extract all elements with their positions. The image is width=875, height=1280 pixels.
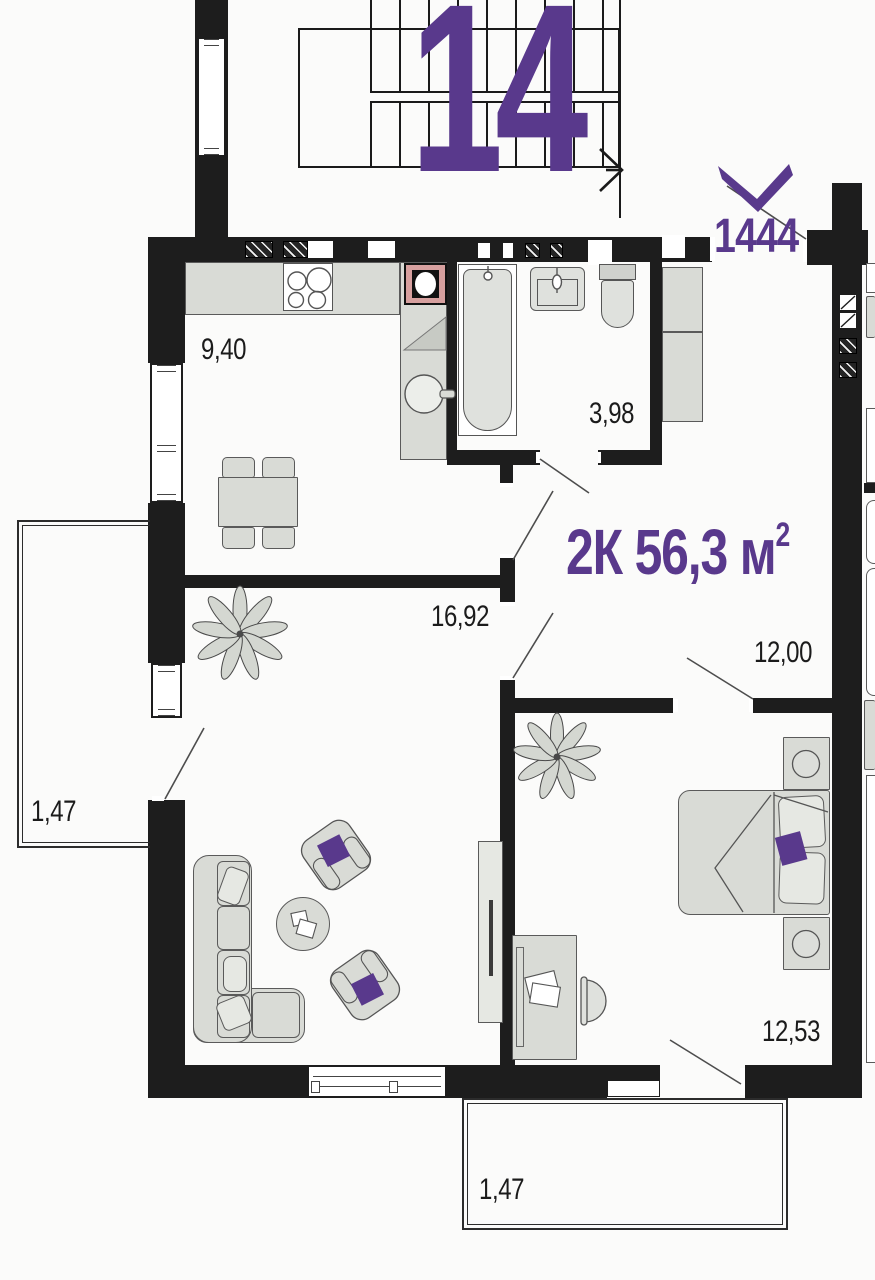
balcony-inner-line xyxy=(467,1103,783,1225)
stove xyxy=(283,263,333,311)
vent-shaft-icon xyxy=(840,313,856,328)
stair-window xyxy=(197,37,226,157)
room-area-balcony-bottom: 1,47 xyxy=(479,1175,524,1205)
wall-top xyxy=(148,237,712,262)
door-cap xyxy=(749,699,753,712)
door-cap xyxy=(500,483,513,487)
neighbor-fixture xyxy=(866,408,875,483)
dining-chair xyxy=(222,457,255,478)
plant-icon xyxy=(192,586,289,681)
desk-edge xyxy=(516,947,524,1047)
wall-opening xyxy=(503,243,513,258)
vent-shaft-icon xyxy=(283,241,308,258)
window-mullion xyxy=(157,494,176,501)
armchair xyxy=(296,815,375,895)
area-superscript: 2 xyxy=(776,516,790,554)
floor-plan: 14 1444 2К 56,3 м2 9,40 3,98 16,92 12,00… xyxy=(0,0,875,1280)
room-area-bathroom: 3,98 xyxy=(589,399,634,429)
neighbor-fixture xyxy=(866,263,875,293)
neighbor-fixture xyxy=(866,500,875,564)
wall-bottom-mid xyxy=(447,1065,607,1098)
living-window-bottom xyxy=(307,1065,447,1098)
dining-table xyxy=(218,477,298,527)
door-cap xyxy=(500,676,515,680)
window-mullion xyxy=(157,445,176,452)
wardrobe-upper xyxy=(662,267,703,332)
wardrobe-lower xyxy=(662,332,703,422)
toilet-tank xyxy=(599,264,636,280)
wall-left-b xyxy=(148,503,185,663)
wall-opening xyxy=(368,241,395,258)
living-window-left xyxy=(151,663,182,718)
bed-pillow xyxy=(778,795,827,849)
window-mullion xyxy=(204,39,219,46)
wall-opening xyxy=(478,243,490,258)
bedroom-window-bottom xyxy=(607,1080,660,1097)
sofa-pillow xyxy=(223,956,247,992)
unit-number: 1444 xyxy=(714,213,798,261)
desk-chair xyxy=(581,977,606,1025)
wall-bottom-right xyxy=(745,1065,862,1098)
brand-check-icon xyxy=(718,164,793,212)
neighbor-fixture xyxy=(864,700,875,770)
dining-chair xyxy=(262,457,295,478)
sofa-cushion xyxy=(217,906,250,950)
nightstand-bottom xyxy=(783,917,830,970)
wall-opening xyxy=(308,241,333,258)
window-mullion xyxy=(158,709,175,716)
wall-bedroom-top-l xyxy=(500,698,673,713)
wall-bottom-overwin xyxy=(607,1065,660,1081)
washing-machine xyxy=(404,263,447,305)
door-cap xyxy=(536,452,540,463)
wall-opening xyxy=(662,235,685,258)
dining-chair xyxy=(222,527,255,549)
wall-opening xyxy=(588,240,612,265)
big-floor-number: 14 xyxy=(410,0,580,208)
wall-left-c xyxy=(148,800,185,1098)
room-area-balcony-left: 1,47 xyxy=(31,797,76,827)
plant-icon xyxy=(513,713,602,801)
vent-shaft-icon xyxy=(550,243,563,258)
balcony-bottom xyxy=(462,1098,788,1230)
washer-door xyxy=(412,270,439,298)
vent-shaft-icon xyxy=(245,241,273,258)
kitchen-window xyxy=(150,363,183,503)
vent-shaft-icon xyxy=(525,243,540,258)
wall-bath-left xyxy=(447,262,457,460)
neighbor-fixture xyxy=(866,568,875,696)
neighbor-fixture xyxy=(866,296,875,338)
neighbor-wall xyxy=(864,483,875,493)
room-area-bedroom: 12,53 xyxy=(762,1017,820,1047)
window-mullion xyxy=(204,148,219,155)
bed-pillow xyxy=(778,851,826,905)
room-area-living: 16,92 xyxy=(431,602,489,632)
coffee-table xyxy=(276,897,330,951)
tv xyxy=(489,900,493,976)
vent-shaft-icon xyxy=(839,362,857,378)
wall-stub xyxy=(500,465,513,483)
nightstand-top xyxy=(783,737,830,790)
vent-shaft-icon xyxy=(840,295,856,310)
dining-chair xyxy=(262,527,295,549)
washer-drum xyxy=(415,272,436,296)
stair-right-edge xyxy=(619,0,621,218)
window-tick xyxy=(311,1081,320,1093)
door-post-a xyxy=(500,558,515,603)
wall-kitchen-living xyxy=(185,575,500,588)
room-area-hallway: 12,00 xyxy=(754,638,812,668)
window-mullion xyxy=(158,665,175,672)
window-tick xyxy=(389,1081,398,1093)
door-cap xyxy=(740,1068,745,1095)
armchair xyxy=(325,945,404,1025)
bathroom-sink-basin xyxy=(537,279,578,306)
apartment-area-title: 2К 56,3 м2 xyxy=(566,518,789,584)
bathtub-inner xyxy=(463,269,512,431)
area-main: 2К 56,3 м xyxy=(566,516,776,588)
wall-bath-bottom-l xyxy=(447,450,540,465)
door-cap xyxy=(803,232,807,262)
neighbor-fixture xyxy=(866,775,875,1063)
window-mullion xyxy=(157,365,176,372)
sofa-seat xyxy=(252,992,300,1038)
toilet-bowl xyxy=(601,280,634,328)
room-area-kitchen: 9,40 xyxy=(201,335,246,365)
wall-left-a xyxy=(148,237,185,363)
wall-bedroom-top-r xyxy=(753,698,832,713)
door-cap xyxy=(152,796,164,801)
window-frame xyxy=(313,1076,441,1087)
wall-bottom-left xyxy=(148,1065,307,1098)
door-cap xyxy=(673,699,678,712)
door-cap xyxy=(598,452,601,463)
door-cap xyxy=(500,554,515,558)
door-cap xyxy=(500,602,515,606)
vent-shaft-icon xyxy=(839,338,857,354)
wall-bath-right xyxy=(650,262,662,465)
